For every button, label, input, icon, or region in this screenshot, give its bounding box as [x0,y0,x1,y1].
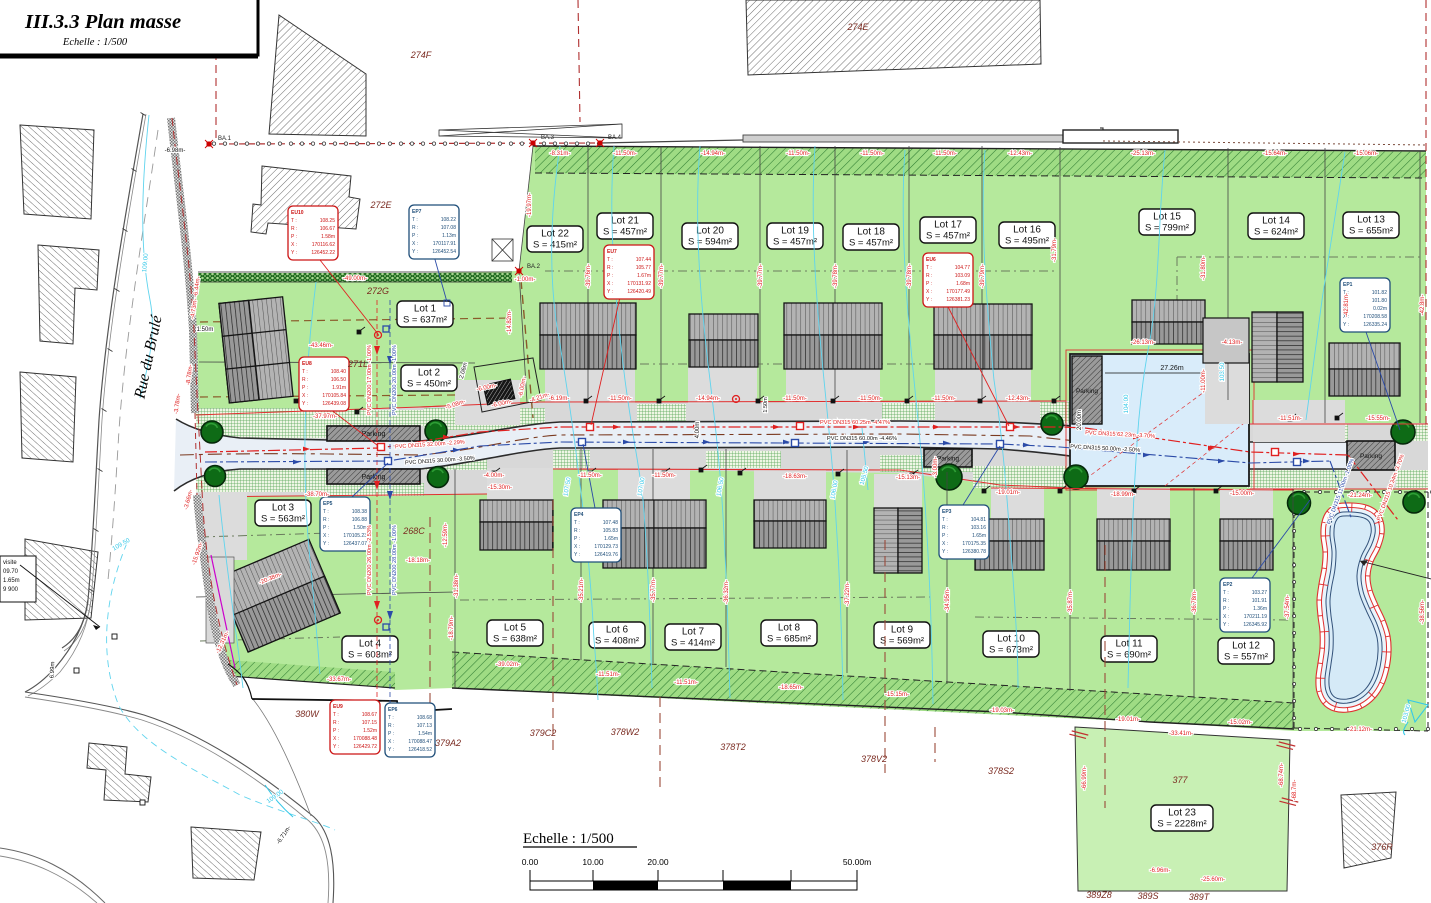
svg-text:1.58m: 1.58m [321,234,335,240]
svg-text:T :: T : [926,265,932,271]
svg-text:EU8: EU8 [302,361,312,367]
svg-text:Y :: Y : [1343,322,1349,328]
svg-text:-15.00m-: -15.00m- [1230,491,1254,497]
svg-text:1.50m: 1.50m [353,525,367,531]
svg-text:R :: R : [926,273,932,279]
svg-text:-6.96m-: -6.96m- [1150,868,1171,874]
svg-text:Parking: Parking [362,431,386,438]
svg-text:-36.32m-: -36.32m- [724,580,730,604]
svg-text:-35.87m-: -35.87m- [1068,590,1074,614]
svg-text:-11.50m-: -11.50m- [932,396,956,402]
svg-text:376R: 376R [1371,842,1393,852]
svg-text:-12.59m-: -12.59m- [443,523,449,547]
svg-text:Echelle : 1/500: Echelle : 1/500 [523,831,614,847]
svg-text:106.50: 106.50 [331,377,347,383]
svg-text:0.00: 0.00 [522,857,539,867]
svg-text:-38.56m-: -38.56m- [1420,600,1426,624]
svg-text:103.27: 103.27 [1252,590,1268,596]
svg-text:Lot 10: Lot 10 [997,634,1025,645]
svg-text:-18.79m-: -18.79m- [449,616,455,640]
svg-text:-39.79m-: -39.79m- [980,264,986,288]
svg-text:-25.60m-: -25.60m- [1201,877,1225,883]
svg-text:272E: 272E [369,200,392,210]
svg-text:126419.76: 126419.76 [594,552,618,558]
svg-text:Y :: Y : [1223,622,1229,628]
svg-text:170105.23: 170105.23 [343,533,367,539]
svg-text:378W2: 378W2 [611,727,640,737]
svg-text:1.36m: 1.36m [1253,606,1267,612]
svg-text:170105.84: 170105.84 [322,393,346,399]
svg-text:1.68m: 1.68m [956,281,970,287]
svg-text:Y :: Y : [302,401,308,407]
svg-text:-37.22m-: -37.22m- [845,582,851,606]
svg-text:S = 495m²: S = 495m² [1005,236,1049,247]
svg-text:6.99m: 6.99m [50,661,57,678]
svg-text:-11.51m-: -11.51m- [596,672,620,678]
svg-text:Y :: Y : [333,744,339,750]
svg-text:Lot 19: Lot 19 [781,226,809,237]
svg-text:107.08: 107.08 [441,225,457,231]
svg-text:379A2: 379A2 [435,738,461,748]
svg-text:Lot 1: Lot 1 [414,304,437,315]
svg-text:S = 457m²: S = 457m² [926,231,970,242]
svg-text:P :: P : [291,234,297,240]
svg-text:S = 457m²: S = 457m² [849,238,893,249]
svg-text:T :: T : [302,369,308,375]
svg-text:107.48: 107.48 [603,520,619,526]
svg-text:R :: R : [574,528,580,534]
svg-text:108.67: 108.67 [362,712,378,718]
svg-text:R :: R : [302,377,308,383]
svg-text:170211.19: 170211.19 [1244,614,1267,620]
svg-text:Lot 3: Lot 3 [272,503,295,514]
svg-text:P :: P : [1223,606,1229,612]
svg-text:101.91: 101.91 [1252,598,1268,604]
svg-text:Parking: Parking [1076,388,1098,395]
svg-text:T :: T : [412,217,418,223]
svg-text:-4.00m-: -4.00m- [484,473,505,479]
svg-text:101.82: 101.82 [1372,290,1388,296]
svg-text:-11.00m-: -11.00m- [1201,369,1207,393]
svg-text:-39.77m-: -39.77m- [659,264,665,288]
svg-text:-39.77m-: -39.77m- [758,264,764,288]
svg-text:-11.50m-: -11.50m- [786,151,810,157]
svg-text:-31.80m-: -31.80m- [1201,256,1207,280]
svg-text:S = 557m²: S = 557m² [1224,652,1268,663]
svg-text:126452.22: 126452.22 [311,250,335,256]
svg-text:X :: X : [574,544,580,550]
svg-text:105.77: 105.77 [636,265,652,271]
svg-text:P :: P : [607,273,613,279]
svg-text:268C: 268C [402,526,425,536]
svg-text:4.00m: 4.00m [695,422,701,439]
svg-text:EU6: EU6 [926,257,936,263]
svg-text:S = 569m²: S = 569m² [880,636,924,647]
svg-text:-31.38m-: -31.38m- [454,574,460,598]
svg-text:108.38: 108.38 [352,509,368,515]
svg-text:EP1: EP1 [1343,282,1353,288]
svg-text:S = 408m²: S = 408m² [595,636,639,647]
svg-text:-19.03m-: -19.03m- [990,708,1014,714]
svg-text:-37.97m-: -37.97m- [313,414,337,420]
svg-text:BA.2: BA.2 [527,264,541,270]
svg-text:-11.51m-: -11.51m- [1278,416,1302,422]
svg-text:170175.35: 170175.35 [962,541,986,547]
svg-text:P :: P : [323,525,329,531]
svg-text:-68.74m-: -68.74m- [1279,763,1285,787]
svg-text:PVC DN315 60.00m -4.46%: PVC DN315 60.00m -4.46% [827,436,897,442]
svg-text:379C2: 379C2 [530,728,557,738]
svg-text:Lot 4: Lot 4 [359,639,382,650]
svg-text:108.22: 108.22 [441,217,457,223]
svg-text:104.81: 104.81 [971,517,987,523]
svg-text:P :: P : [412,233,418,239]
svg-text:-35.77m-: -35.77m- [651,578,657,602]
svg-text:380W: 380W [295,709,320,719]
svg-text:Y :: Y : [323,541,329,547]
svg-text:126380.78: 126380.78 [962,549,986,555]
svg-text:Lot 5: Lot 5 [504,623,527,634]
svg-text:0.02m: 0.02m [1373,306,1387,312]
svg-text:Lot 22: Lot 22 [541,229,569,240]
svg-text:X :: X : [607,281,613,287]
svg-text:R :: R : [412,225,418,231]
svg-text:389T: 389T [1189,892,1211,902]
svg-text:272G: 272G [366,286,389,296]
svg-text:S = 638m²: S = 638m² [493,634,537,645]
svg-text:104.77: 104.77 [955,265,971,271]
svg-text:10.00: 10.00 [582,857,604,867]
svg-text:BA.4: BA.4 [608,135,622,141]
svg-text:P :: P : [942,533,948,539]
svg-text:20.00: 20.00 [647,857,669,867]
svg-text:271L: 271L [347,359,368,369]
svg-text:-11.50m-: -11.50m- [860,151,884,157]
svg-text:-6.98m-: -6.98m- [165,148,186,154]
svg-text:R :: R : [388,723,394,729]
svg-text:274E: 274E [846,22,869,32]
svg-text:378S2: 378S2 [988,766,1014,776]
svg-text:-15.15m-: -15.15m- [885,692,909,698]
svg-text:-26.13m-: -26.13m- [1131,340,1155,346]
svg-text:377: 377 [1172,775,1188,785]
svg-text:-34.95m-: -34.95m- [945,588,951,612]
svg-text:Y :: Y : [574,552,580,558]
svg-text:105.83: 105.83 [603,528,619,534]
svg-text:106.88: 106.88 [352,517,368,523]
svg-text:103.50: 103.50 [1219,362,1226,381]
svg-text:378V2: 378V2 [861,754,887,764]
svg-text:T :: T : [1223,590,1229,596]
svg-text:1.65m: 1.65m [3,578,20,584]
svg-text:S = 685m²: S = 685m² [767,634,811,645]
svg-text:PVC DN200 17.00m -1.00%: PVC DN200 17.00m -1.00% [367,345,373,415]
svg-text:50.00m: 50.00m [843,857,871,867]
svg-text:-42.81m-: -42.81m- [1344,293,1350,317]
svg-text:Lot 7: Lot 7 [682,627,705,638]
svg-text:X :: X : [323,533,329,539]
svg-text:-11.50m-: -11.50m- [652,473,676,479]
svg-text:BA.1: BA.1 [218,136,232,142]
svg-text:-15.64m-: -15.64m- [1263,151,1287,157]
svg-text:1.50m: 1.50m [197,327,214,333]
svg-text:378T2: 378T2 [720,742,746,752]
svg-text:126439.08: 126439.08 [322,401,346,407]
svg-text:Parking: Parking [937,455,959,462]
svg-text:S = 2228m²: S = 2228m² [1157,819,1206,830]
svg-text:T :: T : [942,517,948,523]
svg-text:-6.19m-: -6.19m- [549,396,570,402]
svg-text:Y :: Y : [926,297,932,303]
svg-text:-15.13m-: -15.13m- [896,475,920,481]
svg-text:X :: X : [291,242,297,248]
svg-text:107.13: 107.13 [417,723,433,729]
svg-text:EU10: EU10 [291,210,304,216]
svg-text:PVC DN200 20.00m -1.00%: PVC DN200 20.00m -1.00% [392,345,398,415]
svg-text:-39.78m-: -39.78m- [833,264,839,288]
svg-text:Y :: Y : [942,549,948,555]
svg-text:126429.72: 126429.72 [353,744,377,750]
svg-text:-11.50m-: -11.50m- [858,396,882,402]
svg-text:S = 603m²: S = 603m² [348,650,392,661]
svg-text:-18.99m-: -18.99m- [1111,492,1135,498]
svg-text:BA.3: BA.3 [541,135,555,141]
svg-text:-33.67m-: -33.67m- [327,677,351,683]
svg-text:-4.13m-: -4.13m- [1222,340,1243,346]
svg-text:PVC DN315 60.25m -4.47%: PVC DN315 60.25m -4.47% [820,420,890,426]
svg-text:Lot 16: Lot 16 [1013,225,1041,236]
svg-text:9 900: 9 900 [3,587,19,593]
svg-text:-39.78m-: -39.78m- [907,264,913,288]
svg-text:107.15: 107.15 [362,720,378,726]
svg-text:-11.50m-: -11.50m- [783,396,807,402]
svg-text:S = 594m²: S = 594m² [688,237,732,248]
svg-text:S = 624m²: S = 624m² [1254,227,1298,238]
svg-text:S = 450m²: S = 450m² [407,379,451,390]
svg-text:-1.00m-: -1.00m- [515,277,536,283]
svg-text:27.26m: 27.26m [1160,365,1184,372]
svg-text:Y :: Y : [412,249,418,255]
svg-text:-11.50m-: -11.50m- [578,473,602,479]
svg-text:T :: T : [607,257,613,263]
svg-text:-39.76m-: -39.76m- [586,264,592,288]
svg-text:Lot 2: Lot 2 [418,368,441,379]
svg-text:1.54m: 1.54m [418,731,432,737]
svg-text:P :: P : [388,731,394,737]
svg-text:Lot 23: Lot 23 [1168,808,1196,819]
svg-text:126381.23: 126381.23 [946,297,970,303]
svg-text:-14.82m-: -14.82m- [507,310,513,334]
svg-text:P :: P : [926,281,932,287]
svg-text:-21.24m-: -21.24m- [1348,493,1372,499]
svg-text:Y :: Y : [607,289,613,295]
svg-text:170131.92: 170131.92 [627,281,651,287]
svg-text:Y :: Y : [291,250,297,256]
svg-text:Lot 21: Lot 21 [611,216,639,227]
svg-text:107.44: 107.44 [636,257,652,263]
svg-text:Lot 14: Lot 14 [1262,216,1290,227]
svg-text:S = 563m²: S = 563m² [261,514,305,525]
svg-text:-35.21m-: -35.21m- [579,578,585,602]
svg-text:-12.43m-: -12.43m- [1008,151,1032,157]
svg-text:170088.47: 170088.47 [408,739,432,745]
svg-text:104.00: 104.00 [1123,394,1130,413]
svg-text:106.67: 106.67 [320,226,336,232]
svg-text:EP4: EP4 [574,512,584,518]
svg-text:S = 673m²: S = 673m² [989,645,1033,656]
svg-text:T :: T : [388,715,394,721]
svg-text:1.50m: 1.50m [763,397,769,413]
svg-text:-3.00m-: -3.00m- [933,457,939,478]
svg-text:108.68: 108.68 [417,715,433,721]
svg-text:-42.8m-: -42.8m- [1420,295,1426,316]
svg-text:170177.49: 170177.49 [946,289,970,295]
svg-text:170208.58: 170208.58 [1363,314,1387,320]
svg-text:PVC DN200 28.00m -1.00%: PVC DN200 28.00m -1.00% [392,525,398,595]
svg-text:Lot 12: Lot 12 [1232,641,1260,652]
svg-text:Lot 6: Lot 6 [606,625,629,636]
svg-text:T :: T : [333,712,339,718]
svg-text:-66.99m-: -66.99m- [1082,766,1088,790]
svg-text:X :: X : [926,289,932,295]
svg-text:-11.50m-: -11.50m- [608,396,632,402]
svg-text:-18.18m-: -18.18m- [406,558,430,564]
svg-text:S = 414m²: S = 414m² [671,638,715,649]
svg-text:EP5: EP5 [323,501,333,507]
svg-text:Lot 15: Lot 15 [1153,212,1181,223]
svg-text:R :: R : [323,517,329,523]
svg-text:170129.73: 170129.73 [594,544,618,550]
svg-text:-37.54m-: -37.54m- [1285,595,1291,619]
svg-text:EP7: EP7 [412,209,422,215]
svg-text:-31.79m-: -31.79m- [1052,238,1058,262]
svg-text:R :: R : [607,265,613,271]
svg-text:126335.24: 126335.24 [1363,322,1387,328]
svg-text:126345.92: 126345.92 [1243,622,1267,628]
svg-text:R :: R : [942,525,948,531]
svg-text:126420.49: 126420.49 [627,289,651,295]
svg-text:-38.70m-: -38.70m- [305,492,329,498]
svg-text:-11.50m-: -11.50m- [613,151,637,157]
svg-text:III.3.3 Plan masse: III.3.3 Plan masse [24,11,181,33]
svg-text:108.25: 108.25 [320,218,336,224]
svg-text:-18.65m-: -18.65m- [779,685,803,691]
svg-text:-19.01m-: -19.01m- [1116,717,1140,723]
svg-text:Y :: Y : [388,747,394,753]
svg-text:-15.02m-: -15.02m- [1228,720,1252,726]
svg-text:170117.91: 170117.91 [433,241,456,247]
svg-text:S = 637m²: S = 637m² [403,315,447,326]
svg-text:S = 655m²: S = 655m² [1349,226,1393,237]
svg-text:-21.12m-: -21.12m- [1348,727,1372,733]
svg-text:PVC DN200 26.00m -2.53%: PVC DN200 26.00m -2.53% [367,525,373,595]
svg-text:1.65m: 1.65m [972,533,986,539]
svg-text:-12.43m-: -12.43m- [1006,396,1030,402]
svg-text:09.70: 09.70 [3,569,19,575]
svg-text:EU7: EU7 [607,249,617,255]
svg-text:Parking: Parking [1360,453,1382,460]
svg-text:-8.31m-: -8.31m- [550,151,571,157]
svg-text:-18.63m-: -18.63m- [783,474,807,480]
svg-text:X :: X : [412,241,418,247]
svg-text:T :: T : [574,520,580,526]
svg-text:1.52m: 1.52m [363,728,377,734]
svg-text:Echelle : 1/500: Echelle : 1/500 [62,37,128,48]
svg-text:X :: X : [1223,614,1229,620]
svg-text:-25.13m-: -25.13m- [1131,151,1155,157]
svg-text:389S: 389S [1137,891,1158,901]
svg-text:170116.62: 170116.62 [312,242,335,248]
svg-text:-39.02m-: -39.02m- [496,662,520,668]
svg-text:T :: T : [291,218,297,224]
svg-text:EP3: EP3 [942,509,952,515]
svg-text:-43.46m-: -43.46m- [309,343,333,349]
svg-text:103.16: 103.16 [971,525,987,531]
svg-text:-36.78m-: -36.78m- [1192,590,1198,614]
svg-text:P :: P : [333,728,339,734]
svg-text:Lot 20: Lot 20 [696,226,724,237]
svg-text:S = 457m²: S = 457m² [773,237,817,248]
svg-text:R :: R : [1223,598,1229,604]
svg-text:Lot 13: Lot 13 [1357,215,1385,226]
svg-text:Lot 9: Lot 9 [891,625,914,636]
svg-text:-11.51m-: -11.51m- [674,680,698,686]
svg-text:visite: visite [3,560,17,566]
svg-text:108.40: 108.40 [331,369,347,375]
svg-text:Lot 18: Lot 18 [857,227,885,238]
svg-text:101.80: 101.80 [1372,298,1388,304]
svg-text:Lot 8: Lot 8 [778,623,801,634]
svg-text:Parking: Parking [362,474,386,481]
svg-text:P :: P : [574,536,580,542]
svg-text:126418.52: 126418.52 [408,747,432,753]
svg-text:1.13m: 1.13m [442,233,456,239]
svg-text:20.00m: 20.00m [1077,410,1083,430]
svg-text:-15.06m-: -15.06m- [1354,151,1378,157]
svg-text:-15.55m-: -15.55m- [1366,416,1390,422]
svg-text:T :: T : [323,509,329,515]
svg-text:Lot 17: Lot 17 [934,220,962,231]
svg-text:-11.50m-: -11.50m- [933,151,957,157]
svg-text:-33.41m-: -33.41m- [1169,731,1193,737]
svg-text:1.65m: 1.65m [604,536,618,542]
svg-text:126452.54: 126452.54 [432,249,456,255]
svg-text:103.09: 103.09 [955,273,971,279]
svg-text:X :: X : [302,393,308,399]
svg-text:1.67m: 1.67m [637,273,651,279]
svg-text:-19.97m-: -19.97m- [527,193,533,217]
svg-text:274F: 274F [410,50,432,60]
svg-text:X :: X : [942,541,948,547]
svg-text:S = 415m²: S = 415m² [533,240,577,251]
svg-text:S = 457m²: S = 457m² [603,227,647,238]
svg-text:EP2: EP2 [1223,582,1233,588]
svg-text:-15.30m-: -15.30m- [488,485,512,491]
svg-text:126437.07: 126437.07 [343,541,367,547]
svg-text:S = 799m²: S = 799m² [1145,223,1189,234]
svg-text:EP6: EP6 [388,707,398,713]
svg-text:X :: X : [388,739,394,745]
svg-text:P :: P : [302,385,308,391]
svg-text:-14.94m-: -14.94m- [701,151,725,157]
svg-text:X :: X : [333,736,339,742]
svg-text:R :: R : [291,226,297,232]
svg-text:-68.7m-: -68.7m- [1292,780,1298,801]
svg-text:EU9: EU9 [333,704,343,710]
svg-text:-14.94m-: -14.94m- [696,396,720,402]
svg-text:170088.48: 170088.48 [353,736,377,742]
svg-text:-19.01m-: -19.01m- [996,490,1020,496]
